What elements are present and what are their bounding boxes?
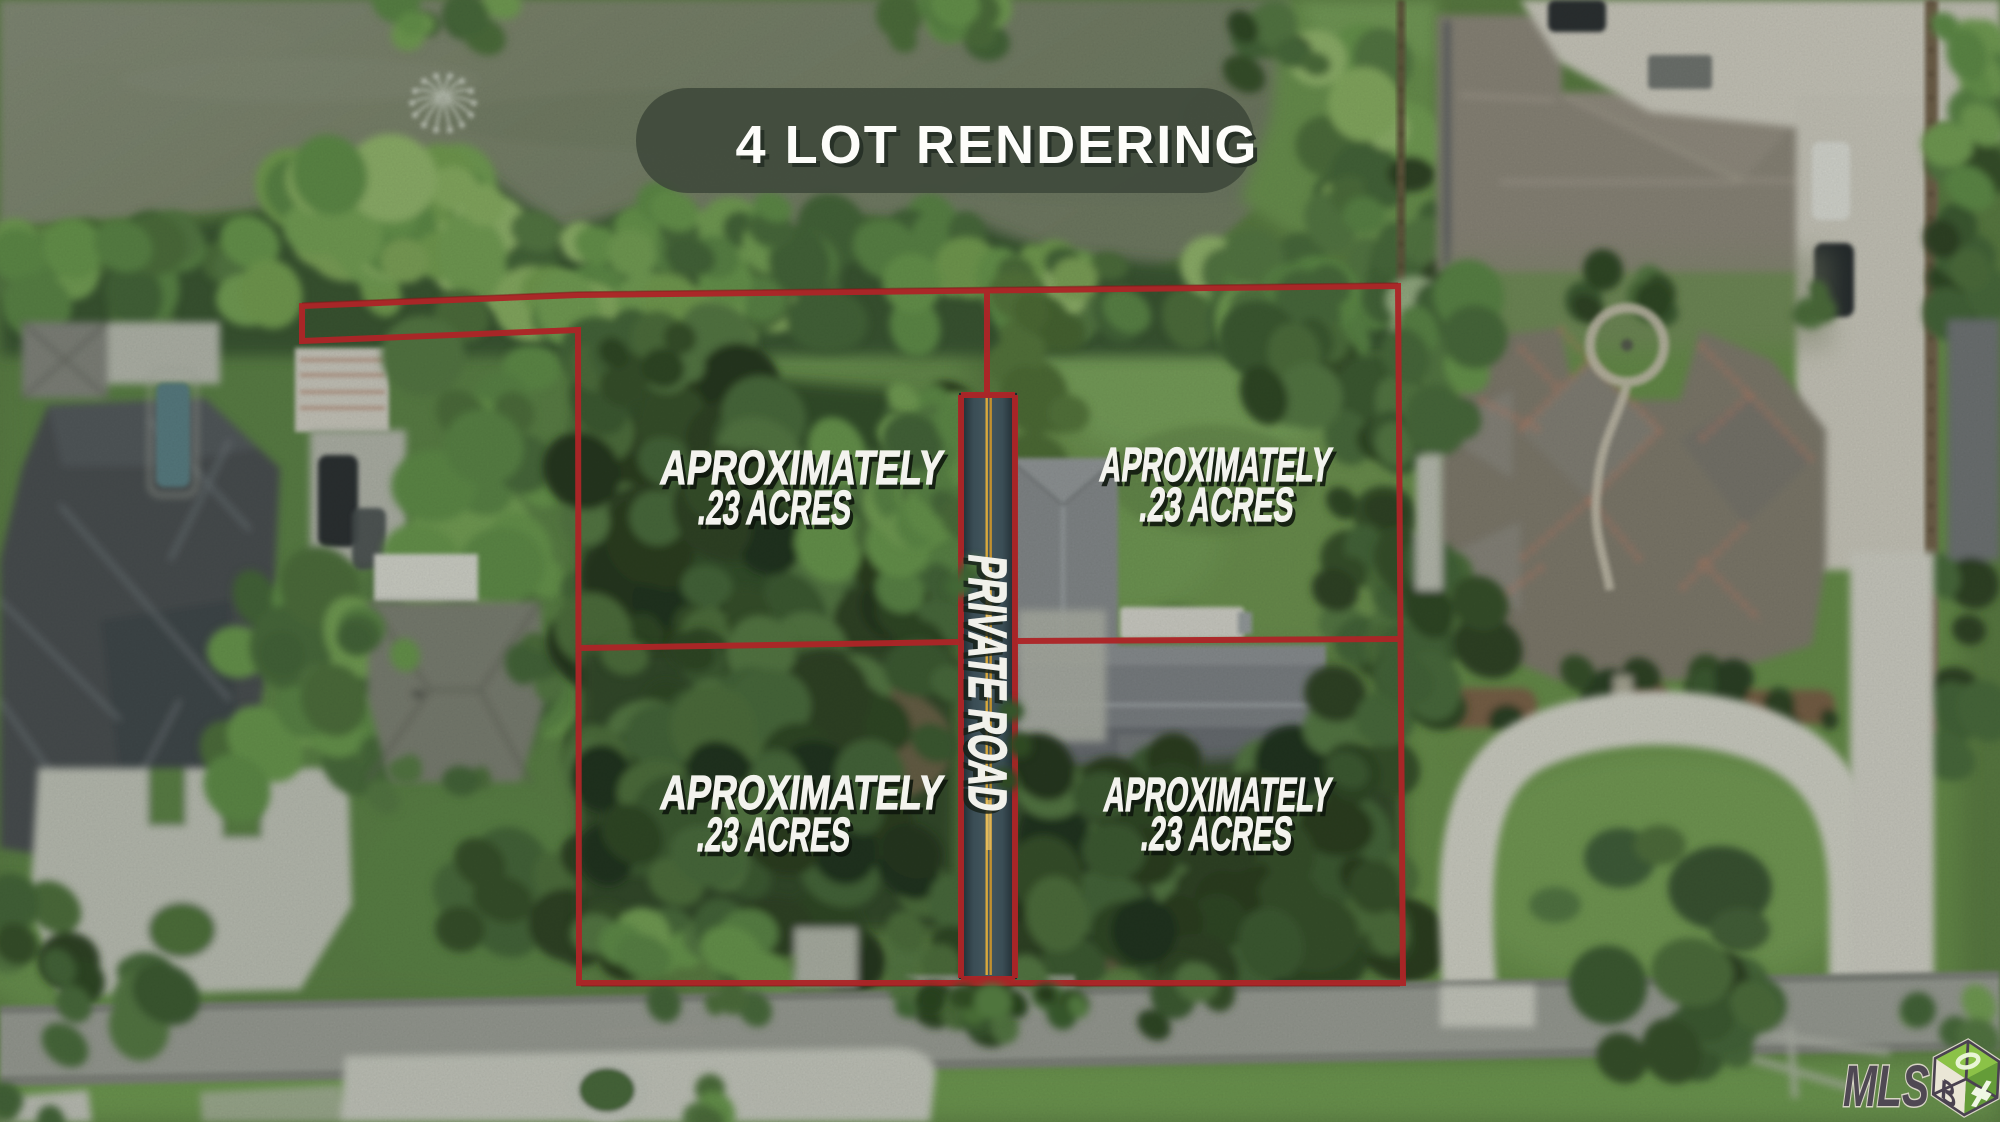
svg-text:PRIVATE ROAD: PRIVATE ROAD [957, 552, 1017, 815]
svg-text:.23 ACRES: .23 ACRES [1137, 478, 1298, 532]
svg-text:.23 ACRES: .23 ACRES [1138, 807, 1296, 861]
svg-text:MLS: MLS [1843, 1054, 1929, 1119]
svg-text:.23 ACRES: .23 ACRES [694, 808, 854, 862]
svg-text:.23 ACRES: .23 ACRES [695, 481, 855, 535]
svg-text:4 LOT RENDERING: 4 LOT RENDERING [736, 115, 1259, 175]
